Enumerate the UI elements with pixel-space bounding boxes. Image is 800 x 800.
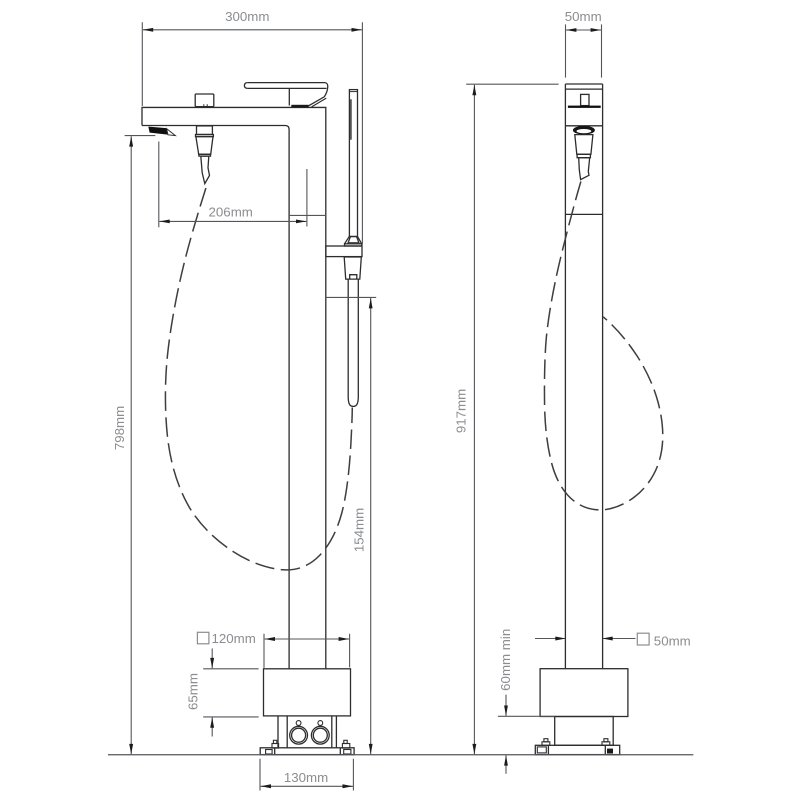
- svg-text:206mm: 206mm: [209, 205, 253, 220]
- svg-text:60mm min: 60mm min: [498, 629, 513, 691]
- svg-text:300mm: 300mm: [225, 9, 269, 24]
- svg-text:50mm: 50mm: [654, 634, 691, 649]
- svg-text:917mm: 917mm: [454, 389, 469, 433]
- svg-text:50mm: 50mm: [565, 9, 602, 24]
- svg-text:65mm: 65mm: [186, 673, 201, 710]
- svg-text:130mm: 130mm: [284, 770, 328, 785]
- svg-text:154mm: 154mm: [352, 508, 367, 552]
- svg-text:120mm: 120mm: [212, 631, 256, 646]
- svg-text:798mm: 798mm: [112, 406, 127, 450]
